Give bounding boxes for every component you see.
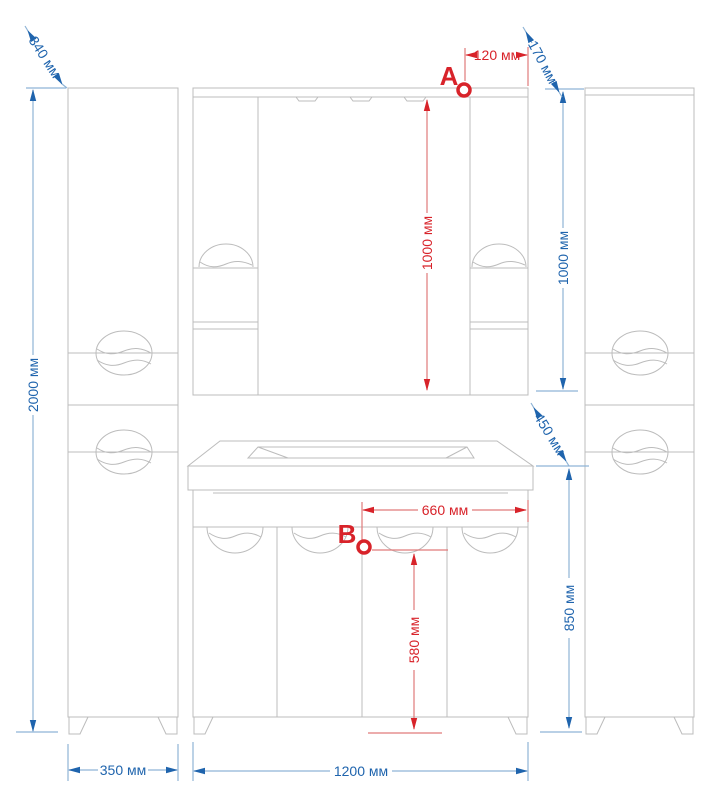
countertop-edge	[188, 466, 533, 490]
lamp-notch	[296, 97, 318, 101]
cabinet-foot	[674, 717, 693, 734]
door-handle-arch	[472, 244, 526, 267]
dim-vanity-width: 1200 мм	[193, 742, 528, 781]
lamp-notch	[404, 97, 426, 101]
point-b-marker	[358, 541, 370, 553]
dim-point-b-offset: 660 мм	[362, 500, 528, 540]
dim-mirror-height-at-a-label: 1000 мм	[419, 216, 435, 270]
dim-overall-height: 2000 мм	[16, 88, 66, 732]
right-tall-cabinet	[585, 88, 694, 734]
door-handle-arch	[199, 244, 253, 267]
cabinet-foot	[158, 717, 177, 734]
cabinet-foot	[194, 717, 213, 734]
dimension-drawing-page: 340 мм 2000 мм 350 мм 1200 мм 1000 мм 17…	[0, 0, 721, 800]
countertop-top	[188, 441, 533, 466]
dim-vanity-height: 850 мм	[536, 466, 589, 732]
door-handle-bowl	[207, 527, 263, 553]
dim-point-b-floor-height: 580 мм	[368, 550, 448, 733]
dim-point-a-offset-label: 120 мм	[474, 47, 521, 63]
dim-left-cabinet-width: 350 мм	[68, 744, 178, 781]
cabinet-foot	[69, 717, 88, 734]
dim-mirror-cabinet-depth: 170 мм	[523, 27, 562, 97]
left-tall-cabinet	[68, 88, 178, 734]
dim-point-b-offset-label: 660 мм	[422, 502, 469, 518]
sink-basin	[248, 447, 474, 458]
dim-left-cabinet-depth-label: 340 мм	[26, 33, 65, 81]
point-a-label: A	[440, 61, 459, 91]
dim-countertop-depth: 450 мм	[531, 403, 569, 466]
vanity-body	[193, 490, 528, 717]
dim-left-cabinet-depth: 340 мм	[25, 26, 67, 88]
dim-point-b-floor-height-label: 580 мм	[406, 617, 422, 664]
dim-mirror-cabinet-depth-label: 170 мм	[525, 38, 561, 87]
point-a-marker	[458, 84, 470, 96]
vanity-with-sink	[188, 441, 533, 734]
dim-point-a-offset: 120 мм	[465, 47, 528, 86]
door-handle-bowl	[462, 527, 518, 553]
door-handle-bowl	[377, 527, 433, 553]
dim-left-cabinet-width-label: 350 мм	[100, 762, 147, 778]
dim-mirror-cabinet-height-label: 1000 мм	[555, 231, 571, 285]
dim-overall-height-label: 2000 мм	[25, 358, 41, 412]
furniture-outlines	[68, 88, 694, 734]
dim-vanity-width-label: 1200 мм	[334, 763, 388, 779]
lamp-notch	[350, 97, 372, 101]
cabinet-foot	[508, 717, 527, 734]
cabinet-foot	[586, 717, 605, 734]
dim-countertop-depth-label: 450 мм	[531, 410, 569, 458]
mirror-cabinet	[193, 88, 528, 395]
point-b-label: B	[338, 519, 357, 549]
marker-point-b: B	[338, 519, 370, 553]
dim-vanity-height-label: 850 мм	[561, 585, 577, 632]
dim-mirror-cabinet-height: 1000 мм	[536, 89, 584, 391]
dim-mirror-height-at-a: 1000 мм	[419, 100, 435, 390]
dimension-drawing: 340 мм 2000 мм 350 мм 1200 мм 1000 мм 17…	[0, 0, 721, 800]
